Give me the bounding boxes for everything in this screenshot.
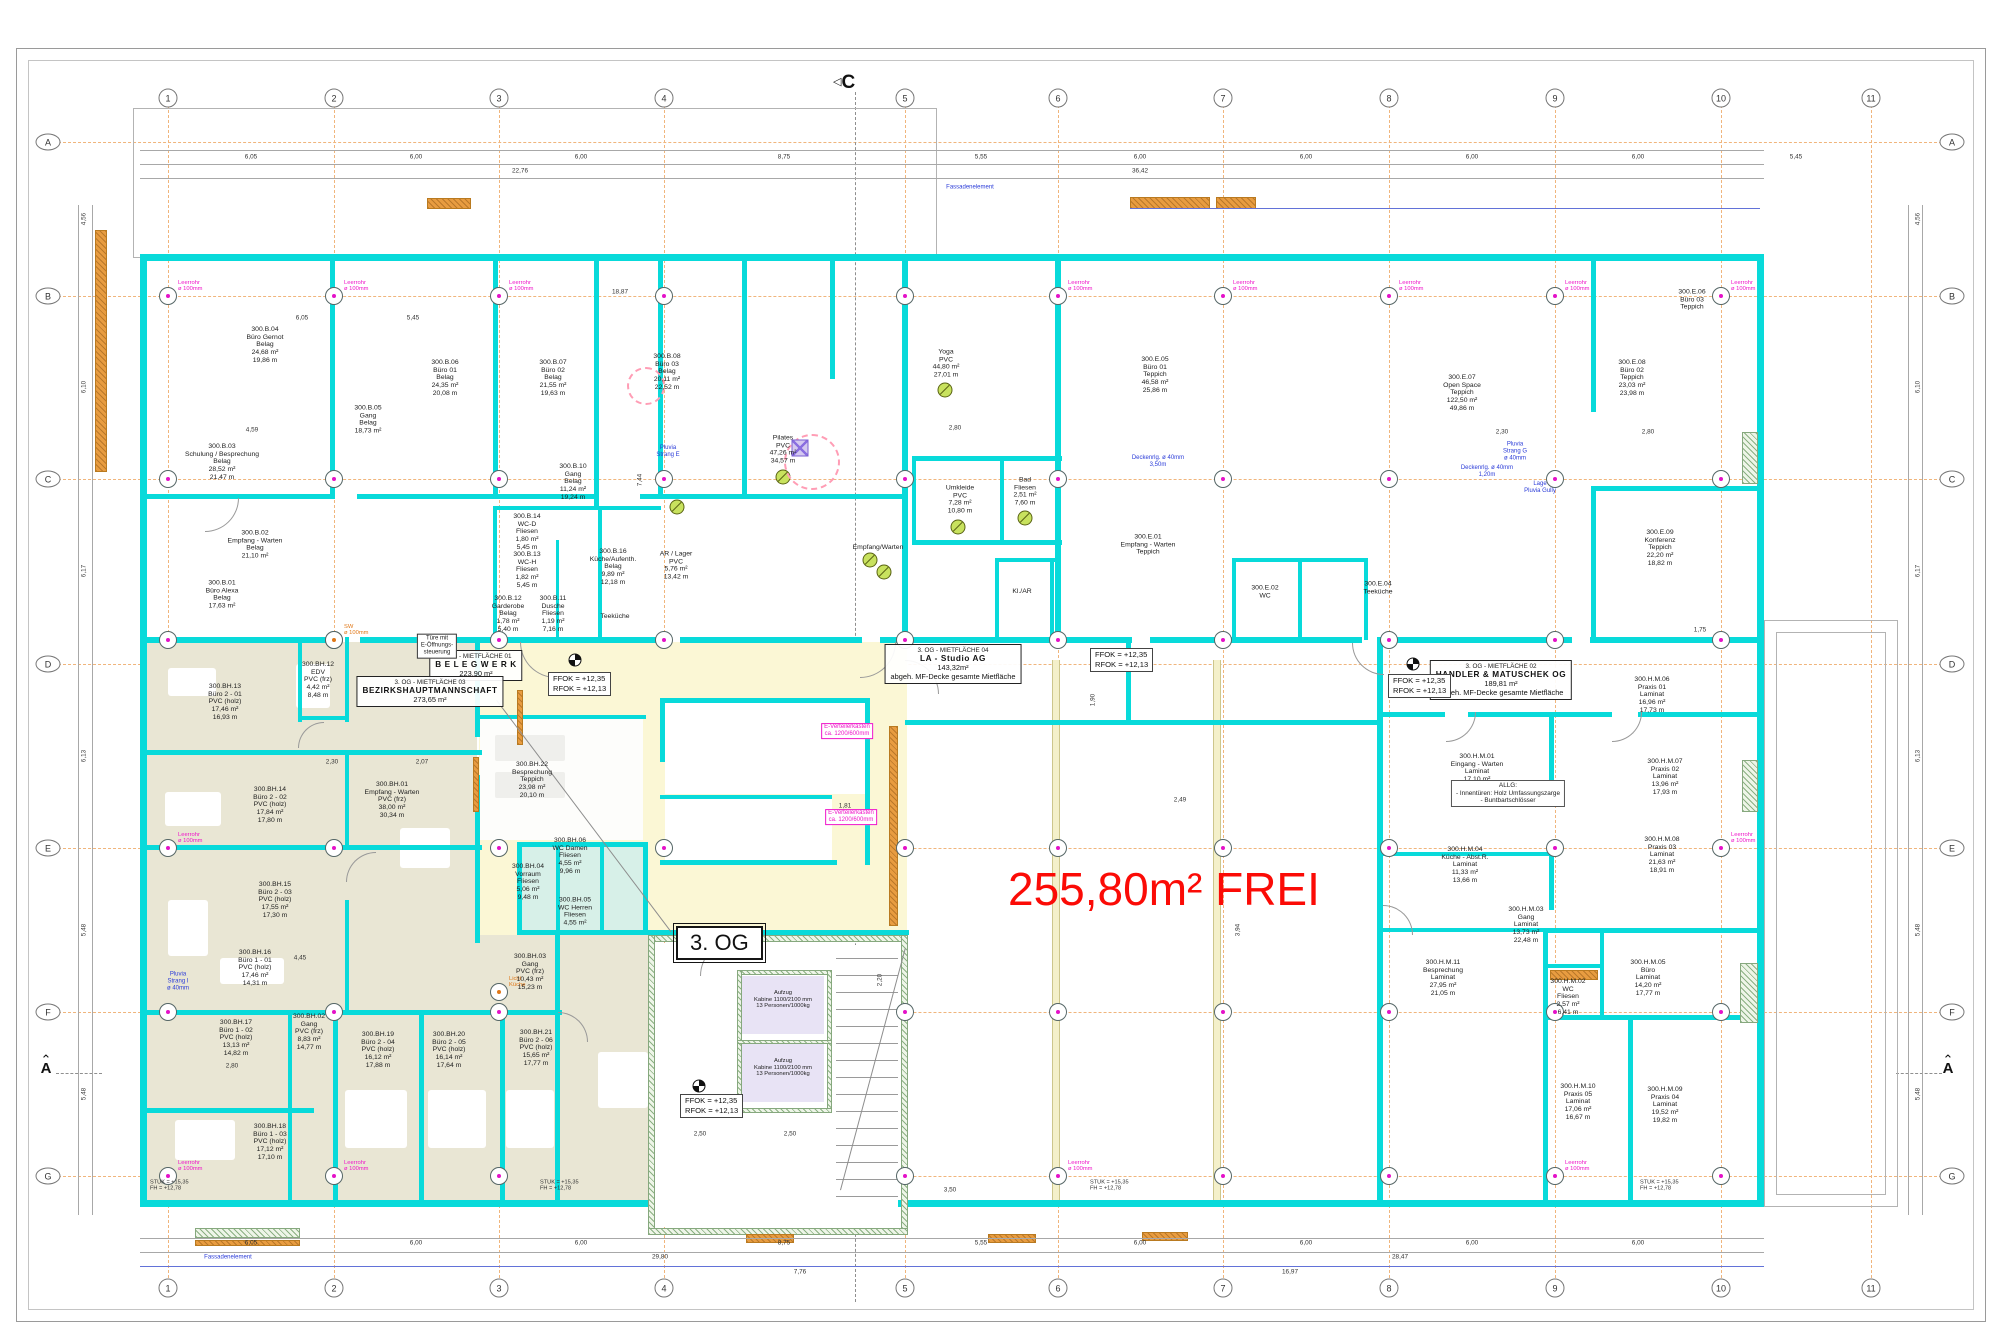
room-label: 300.E.08Büro 02Teppich23,03 m²23,98 m [1618,359,1645,397]
grid-bubble-bottom-11: 11 [1862,1279,1881,1298]
room-label: 300.H.M.09Praxis 04Laminat19,52 m²19,82 … [1647,1086,1682,1124]
plumbing-note: Deckenrlg. ø 40mm1,20m [1461,465,1513,479]
stair-step [836,958,898,959]
room-label: 300.BH.03GangPVC (frz)10,43 m²15,23 m [514,953,546,991]
dimension-text: 1,81 [839,803,851,810]
column-conduit-symbol [490,631,508,649]
dimension-line-blue [140,1266,1764,1267]
grid-bubble-top-7: 7 [1214,89,1233,108]
leerrohr-label: Leerrohrø 100mm [344,1160,368,1173]
dimension-text: 6,00 [1632,154,1644,161]
section-marker-a-left: ⌃A [41,1056,52,1073]
column-conduit-symbol [1049,1003,1067,1021]
dimension-text: 18,87 [612,289,628,296]
dimension-text: 2,80 [949,425,961,432]
room-label: 300.E.01Empfang - WartenTeppich [1121,533,1176,556]
door-swing-arc [1352,643,1384,675]
column-conduit-symbol [1049,631,1067,649]
floor-drain-symbol [863,553,878,568]
column-conduit-symbol [159,1003,177,1021]
grid-bubble-left-B: B [36,288,61,305]
dimension-text: 6,00 [410,1240,422,1247]
furniture [428,1090,486,1148]
dimension-text: 2,07 [416,759,428,766]
dimension-text: 6,00 [575,154,587,161]
room-label: 300.E.07Open SpaceTeppich122,50 m²49,86 … [1443,374,1481,412]
floor-plan-sheet: 11223344556677889910101111AABBCCDDEEFFGG… [0,0,2000,1333]
room-label: 300.H.M.04Küche - Abst.R.Laminat11,33 m²… [1441,846,1488,884]
column-conduit-symbol [655,631,673,649]
room-label: 300.BH.18Büro 1 - 03PVC (holz)17,12 m²17… [253,1123,287,1161]
room-label: YogaPVC44,80 m²27,01 m [933,349,960,380]
wall [995,558,1055,562]
dimension-text: 6,13 [81,750,88,762]
room-label: PilatesPVC47,26 m²34,57 m [770,435,797,466]
column-conduit-symbol [655,470,673,488]
level-label: FFOK = +12,35RFOK = +12,13 [680,1094,743,1118]
dimension-text: 2,50 [694,1131,706,1138]
dimension-text: 5,48 [81,1088,88,1100]
wall [660,860,837,865]
stair-core-wall [1740,963,1758,1023]
column-conduit-symbol [325,1167,343,1185]
room-label: 300.BH.06WC DamenFliesen4,55 m²9,96 m [552,837,587,875]
wall [1232,558,1236,640]
room-label: 300.BH.15Büro 2 - 03PVC (holz)17,55 m²17… [258,881,292,919]
room-label: 300.BH.01Empfang - WartenPVC (frz)38,00 … [365,781,420,819]
wall [140,254,147,1207]
column-conduit-symbol [159,470,177,488]
survey-point-marker [1407,658,1420,671]
wall [1600,928,1604,1018]
stair-core-wall [901,935,908,1235]
wall [660,698,665,762]
ceiling-height-note: STUK = +15,35FH = +12,78 [150,1180,189,1193]
plumbing-note: Fassadenelement [946,185,994,192]
wood-element [889,726,898,926]
dimension-text: 6,00 [1300,1240,1312,1247]
leerrohr-label: Leerrohrø 100mm [1731,832,1755,845]
wall [1383,712,1445,717]
stair-step [836,1179,898,1180]
room-label: UmkleidePVC7,28 m²10,80 m [946,485,974,516]
level-label: FFOK = +12,35RFOK = +12,13 [548,672,611,696]
stair-step [836,975,898,976]
wall [1364,558,1368,640]
stair-core-wall [737,970,832,975]
door-swing-arc [1383,905,1413,935]
leerrohr-label: Leerrohrø 100mm [178,1160,202,1173]
wall [912,456,916,544]
room-label: 300.H.M.06Praxis 01Laminat16,96 m²17,73 … [1634,676,1669,714]
wall [345,900,349,1012]
section-marker-c-top: ◁C [833,72,855,94]
wall [1591,486,1596,642]
wall [360,637,662,643]
grid-bubble-bottom-8: 8 [1380,1279,1399,1298]
dimension-text: 4,59 [246,427,258,434]
survey-point-marker [693,1080,706,1093]
dimension-text: 2,80 [1642,429,1654,436]
column-conduit-symbol [1049,470,1067,488]
dimension-text: 6,00 [1632,1240,1644,1247]
wall [493,506,661,510]
grid-bubble-bottom-3: 3 [490,1279,509,1298]
column-conduit-symbol [490,1167,508,1185]
dimension-line [140,164,1764,165]
dimension-text: 28,47 [1392,1254,1408,1261]
plan-layer: 11223344556677889910101111AABBCCDDEEFFGG… [0,0,2000,1333]
dimension-text: 5,55 [975,154,987,161]
column-conduit-symbol [1214,839,1232,857]
column-conduit-symbol [1214,1167,1232,1185]
wall [660,698,870,703]
column-conduit-symbol [1214,1003,1232,1021]
wall [643,842,648,934]
column-conduit-symbol [896,839,914,857]
grid-bubble-bottom-1: 1 [159,1279,178,1298]
leerrohr-label: Leerrohrø 100mm [1233,280,1257,293]
column-conduit-symbol [1546,631,1564,649]
room-label: 300.B.16Küche/Aufenth.Belag9,89 m²12,18 … [590,548,636,586]
stair-step [836,1094,898,1095]
wall [140,845,482,850]
stair-core-wall [737,1040,832,1044]
column-conduit-symbol [1546,1167,1564,1185]
dimension-text: 36,42 [1132,168,1148,175]
room-label: 300.BH.05WC HerrenFliesen4,55 m² [558,897,592,928]
dimension-line [140,150,1764,151]
dimension-text: 8,75 [778,1240,790,1247]
furniture [495,735,565,761]
dimension-text: 6,00 [1466,154,1478,161]
stair-core-wall [648,935,655,1235]
dimension-text: 3,94 [1235,924,1242,936]
dimension-text: 2,30 [326,759,338,766]
room-label: 300.BH.02GangPVC (frz)8,83 m²14,77 m [293,1013,325,1051]
room-label: 300.B.08Büro 03Belag20,11 m²22,52 m [653,353,680,391]
dimension-text: 6,00 [1466,1240,1478,1247]
level-label: FFOK = +12,35RFOK = +12,13 [1388,674,1451,698]
room-label: 300.BH.19Büro 2 - 04PVC (holz)16,12 m²17… [361,1031,395,1069]
dimension-text: 4,45 [294,955,306,962]
column-conduit-symbol [1712,1167,1730,1185]
stair-core-wall [1742,760,1758,812]
room-label: 300.BH.13Büro 2 - 01PVC (holz)17,46 m²16… [208,683,242,721]
column-conduit-symbol [490,1003,508,1021]
room-label: 300.B.01Büro AlexaBelag17,63 m² [206,580,239,611]
dimension-text: 2,49 [1174,797,1186,804]
stair-step [836,1077,898,1078]
grid-bubble-left-E: E [36,840,61,857]
wall [1150,637,1362,643]
room-label: 300.H.M.11BesprechungLaminat27,95 m²21,0… [1423,959,1463,997]
room-label: 300.BH.17Büro 1 - 02PVC (holz)13,13 m²14… [219,1019,253,1057]
room-label: 300.B.13WC-HFliesen1,82 m²5,45 m [513,551,540,589]
wall [995,558,999,637]
dimension-text: 5,55 [975,1240,987,1247]
wall [905,720,1380,725]
wall [140,750,482,755]
floor-level-label: 3. OG [676,926,763,960]
column-conduit-symbol [159,839,177,857]
dimension-text: 2,80 [226,1063,238,1070]
wall [1298,558,1302,640]
conduit-label: SWø 100mm [344,624,368,637]
room-label: 300.B.07Büro 02Belag21,55 m²19,63 m [539,359,566,397]
dimension-text: 6,10 [1915,381,1922,393]
grid-bubble-top-10: 10 [1712,89,1731,108]
leerrohr-label: Leerrohrø 100mm [178,832,202,845]
dimension-text: 8,75 [778,154,790,161]
dimension-text: 6,13 [1915,750,1922,762]
wall [1591,486,1762,491]
plumbing-note: PluviaStrang Gø 40mm [1503,442,1527,463]
grid-bubble-top-9: 9 [1546,89,1565,108]
room-label: 300.B.10GangBelag11,24 m²19,24 m [559,463,586,501]
furniture [168,900,208,956]
dimension-text: 1,90 [1090,694,1097,706]
dimension-text: 7,44 [637,474,644,486]
room-label: 300.E.09KonferenzTeppich22,20 m²18,82 m [1645,529,1676,567]
grid-bubble-bottom-4: 4 [655,1279,674,1298]
room-label: 300.B.03Schulung / BesprechungBelag28,52… [185,443,259,481]
free-area-label: 255,80m² FREI [1008,862,1320,916]
grid-line-col-10 [1721,105,1722,1283]
column-conduit-symbol [325,470,343,488]
room-label: 300.BH.20Büro 2 - 05PVC (holz)16,14 m²17… [432,1031,466,1069]
column-conduit-symbol [1712,631,1730,649]
leerrohr-label: Leerrohrø 100mm [509,280,533,293]
column-conduit-symbol [896,287,914,305]
leerrohr-label: Leerrohrø 100mm [1068,280,1092,293]
room-label: 300.H.M.10Praxis 05Laminat17,06 m²16,67 … [1560,1083,1595,1121]
column-conduit-symbol [1049,1167,1067,1185]
wood-element [427,198,471,209]
grid-bubble-bottom-9: 9 [1546,1279,1565,1298]
room-label: Teeküche [600,613,629,621]
column-conduit-symbol [1380,1003,1398,1021]
grid-bubble-top-3: 3 [490,89,509,108]
column-conduit-symbol [490,983,508,1001]
wall [594,254,599,506]
stair-step [836,1128,898,1129]
plumbing-note: LagePluvia Gully [1524,481,1556,495]
leerrohr-label: Leerrohrø 100mm [178,280,202,293]
room-label: BadFliesen2,51 m²7,60 m [1013,477,1036,508]
dimension-text: 5,48 [1915,1088,1922,1100]
wall [912,540,1062,545]
wall [298,716,348,720]
dimension-text: 6,00 [575,1240,587,1247]
room-label: Empfang/Warten [853,544,904,552]
wall [742,254,747,499]
plumbing-note: Deckenrlg. ø 40mm3,50m [1132,455,1184,469]
floor-drain-symbol [877,565,892,580]
grid-bubble-left-G: G [36,1168,61,1185]
grid-bubble-bottom-7: 7 [1214,1279,1233,1298]
grid-bubble-right-G: G [1940,1168,1965,1185]
floor-drain-symbol [951,520,966,535]
wall [288,1010,292,1202]
level-label: FFOK = +12,35RFOK = +12,13 [1090,648,1153,672]
column-conduit-symbol [1214,631,1232,649]
column-conduit-symbol [1049,287,1067,305]
grid-bubble-top-8: 8 [1380,89,1399,108]
context-outline [133,108,937,258]
dimension-text: 22,76 [512,168,528,175]
room-label: 300.B.12GarderobeBelag1,78 m²5,40 m [492,595,525,633]
dimension-line-blue [1130,208,1760,209]
column-conduit-symbol [490,287,508,305]
furniture [506,1090,554,1148]
room-label: 300.B.02Empfang - WartenBelag21,10 m² [228,530,283,561]
dimension-text: 5,48 [81,924,88,936]
wood-element [517,690,523,745]
wood-element [1142,1232,1188,1241]
column-conduit-symbol [1380,1167,1398,1185]
column-conduit-symbol [655,839,673,857]
wall [660,795,832,799]
grid-bubble-top-11: 11 [1862,89,1881,108]
plumbing-note: PluviaStrang E [656,445,679,459]
leerrohr-label: Leerrohrø 100mm [1068,1160,1092,1173]
grid-bubble-right-D: D [1940,656,1965,673]
wall [1000,456,1004,544]
leerrohr-label: Leerrohrø 100mm [1565,280,1589,293]
column-conduit-symbol [1546,287,1564,305]
wall [830,254,835,379]
leerrohr-label: Leerrohrø 100mm [1565,1160,1589,1173]
section-marker-a-right: ⌃A [1943,1056,1954,1073]
wall [1055,254,1061,644]
column-conduit-symbol [325,287,343,305]
room-label: 300.E.05Büro 01Teppich46,58 m²25,86 m [1141,356,1168,394]
wall [600,842,604,934]
room-label: 300.B.06Büro 01Belag24,35 m²20,08 m [431,359,458,397]
wall [345,750,349,850]
furniture [165,792,221,826]
grid-bubble-right-E: E [1940,840,1965,857]
door-automation-note: Türe mitE-Öffnungs-steuerung [417,634,457,659]
stair-core-wall [737,1108,832,1113]
wall [898,1200,1764,1207]
furniture [598,1052,648,1108]
grid-bubble-top-5: 5 [896,89,915,108]
furniture [345,1090,407,1148]
plumbing-note: PluviaStrang Iø 40mm [167,972,189,993]
grid-bubble-left-A: A [36,134,61,151]
dimension-text: 16,97 [1282,1269,1298,1276]
dimension-text: 1,75 [1694,627,1706,634]
general-note: ALLG:- Innentüren: Holz Umfassungszarge-… [1451,780,1565,807]
grid-bubble-left-D: D [36,656,61,673]
dimension-text: 6,00 [1300,154,1312,161]
dimension-text: 2,50 [784,1131,796,1138]
stair-step [836,1026,898,1027]
wall [880,637,1132,643]
dimension-text: 4,56 [81,213,88,225]
grid-bubble-right-C: C [1940,471,1965,488]
room-label: 300.H.M.03GangLaminat13,73 m²22,48 m [1508,906,1543,944]
grid-bubble-top-6: 6 [1049,89,1068,108]
dimension-line [140,178,1764,179]
room-label: 300.H.M.05BüroLaminat14,20 m²17,77 m [1630,959,1665,997]
door-swing-arc [205,498,239,532]
stair-step [836,992,898,993]
grid-bubble-right-B: B [1940,288,1965,305]
room-label: 300.H.M.07Praxis 02Laminat13,96 m²17,93 … [1647,758,1682,796]
dimension-text: 6,00 [410,154,422,161]
stair-core-wall [1742,432,1758,484]
stair-step [836,1043,898,1044]
section-line-a-left-stub [56,1073,102,1074]
dimension-text: 6,10 [81,381,88,393]
plumbing-note: Fassadenelement [204,1255,252,1262]
room-label: 300.BH.14Büro 2 - 02PVC (holz)17,84 m²17… [253,786,287,824]
ceiling-beam [1052,660,1060,1200]
wall [1628,1015,1633,1205]
dimension-line [1908,205,1909,1215]
wall [912,456,1062,461]
column-conduit-symbol [1214,287,1232,305]
wood-element [473,757,479,812]
room-label: 300.B.04Büro GernotBelag24,68 m²19,86 m [246,326,283,364]
column-conduit-symbol [1380,287,1398,305]
room-label: 300.BH.22BesprechungTeppich23,98 m²20,10… [512,761,552,799]
grid-line-col-7 [1223,105,1224,1283]
wall [640,494,908,499]
floor-drain-symbol [1018,511,1033,526]
room-label: 300.BH.12EDVPVC (frz)4,42 m²8,48 m [302,661,334,699]
floor-drain-symbol [670,500,685,515]
column-conduit-symbol [1380,839,1398,857]
survey-point-marker [569,654,582,667]
stair-step [836,1196,898,1197]
column-conduit-symbol [325,839,343,857]
column-conduit-symbol [1712,470,1730,488]
dimension-text: 5,48 [1915,924,1922,936]
column-conduit-symbol [159,287,177,305]
wall [1543,928,1548,1205]
wall [1590,637,1762,643]
wall [555,935,560,1205]
column-conduit-symbol [325,1003,343,1021]
column-conduit-symbol [896,1003,914,1021]
wall [1549,848,1554,910]
stair-step [836,1111,898,1112]
dimension-text: 6,05 [245,154,257,161]
dimension-text: 6,05 [296,315,308,322]
ceiling-beam [1213,660,1221,1200]
dimension-text: 4,56 [1915,213,1922,225]
grid-bubble-top-4: 4 [655,89,674,108]
electrical-note: E-Verteilerkästenca. 1200/600mm [821,723,873,739]
dimension-line [92,205,93,1215]
room-label: 300.E.04Teeküche [1363,580,1392,595]
dimension-text: 6,00 [1134,154,1146,161]
stair-step [836,1060,898,1061]
wall [680,637,862,643]
tenancy-label: 3. OG - MIETFLÄCHE 03BEZIRKSHAUPTMANNSCH… [356,676,503,707]
electrical-note: E-Verteilerkästenca. 1200/600mm [825,809,877,825]
grid-bubble-right-A: A [1940,134,1965,151]
grid-bubble-top-1: 1 [159,89,178,108]
elevator-label: AufzugKabine 1100/2100 mm13 Personen/100… [754,1058,812,1078]
grid-bubble-left-C: C [36,471,61,488]
dimension-text: 7,76 [794,1269,806,1276]
grid-bubble-right-F: F [1940,1004,1965,1021]
